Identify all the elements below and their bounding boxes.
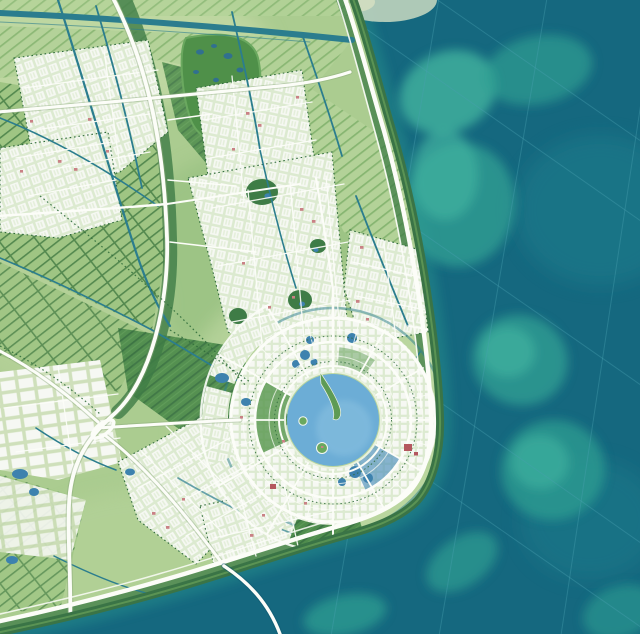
island-building (321, 446, 323, 448)
lake-island-west (299, 417, 307, 425)
masterplan-map (0, 0, 640, 634)
map-canvas (0, 0, 640, 634)
